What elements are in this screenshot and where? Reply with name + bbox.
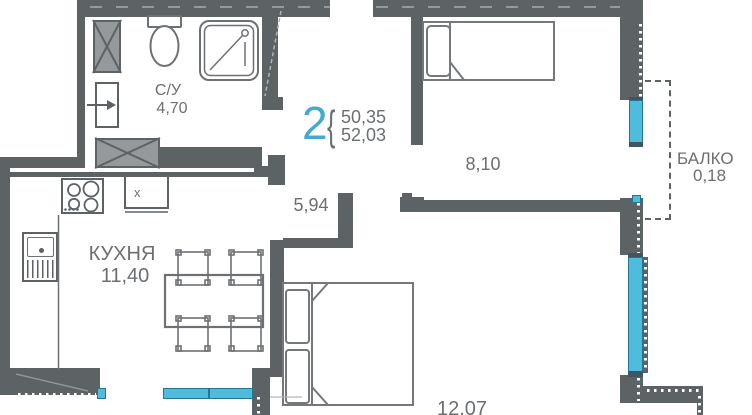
apartment-rooms-count: 2 [302,96,328,150]
room-area-kitchen: 11,40 [101,265,150,288]
sink-tap-icon [39,248,44,253]
apartment-area-total: 52,03 [341,125,386,146]
room-label-bathroom: С/У [155,82,181,100]
window-balcony-top [629,100,643,145]
wall-top-right [373,0,643,17]
wall-dots [637,378,640,401]
wall-dots [18,393,96,396]
wall-toproom-left [411,17,423,145]
chair-icon [176,250,210,285]
wall-centerline [90,6,635,8]
wall-top-left [77,0,330,17]
chair-icon [176,316,210,351]
chair-icon [229,316,263,351]
wall-bedroom-top [424,200,620,212]
wall-bath-right [262,8,278,100]
cabinet-mark: x [134,185,141,200]
wall-kitchen-right [270,240,284,377]
wall-bath-left [77,0,85,160]
vent-shaft [95,138,160,168]
window-small-right [632,195,641,203]
window-kitchen-small [97,388,106,399]
window-mullion [208,389,210,398]
wall-bedroom-left-block [400,197,424,212]
vent-shaft [93,20,121,73]
wall-dots [647,389,699,392]
window-bedroom [628,257,643,373]
dish-rack [27,260,54,278]
wall-dots [639,24,642,98]
wall-kitchen-top-line [10,172,272,177]
washer-icon [87,83,118,127]
floor-plan: С/У 4,70 2 { 50,35 52,03 5,94 8,10 КУХНЯ… [0,0,752,415]
wall-bath-right-cap [262,97,283,110]
room-area-bedroom-top: 8,10 [465,154,500,175]
chairs [176,250,263,351]
room-area-balcony: 0,18 [693,166,726,186]
window-cap [628,371,643,377]
chair-icon [229,250,263,285]
room-area-hall: 5,94 [293,195,328,216]
double-bed-icon [283,283,413,405]
stove-icon [62,179,103,213]
single-bed-icon [423,22,554,80]
wall-hall-left [268,155,285,185]
wall-hall-bottom [283,238,340,248]
sink-basin [27,237,54,257]
wall-kitchen-top-left [0,157,85,168]
toilet-icon [148,16,181,66]
wall-bedroom-left-column [252,368,270,415]
room-label-kitchen: КУХНЯ [89,243,156,266]
wall-dots [257,397,260,414]
balcony-outline [645,80,671,220]
wall-dots [698,396,701,414]
room-area-bathroom: 4,70 [156,100,187,118]
kitchen-sink [22,232,58,282]
brace-icon: { [327,102,335,150]
wall-outer-left [0,168,10,370]
wall-dots [637,203,640,253]
wall-kitchen-bottom [0,368,100,395]
room-area-bedroom-bottom: 12,07 [437,398,487,415]
window-cap [629,142,643,147]
window-kitchen [163,388,253,399]
cabinet-icon [125,176,168,212]
dining-table [165,275,263,327]
wall-bath-bottom [160,147,262,168]
wall-hall-right [338,193,353,248]
wall-dots [644,260,647,370]
shower-icon [200,21,258,80]
